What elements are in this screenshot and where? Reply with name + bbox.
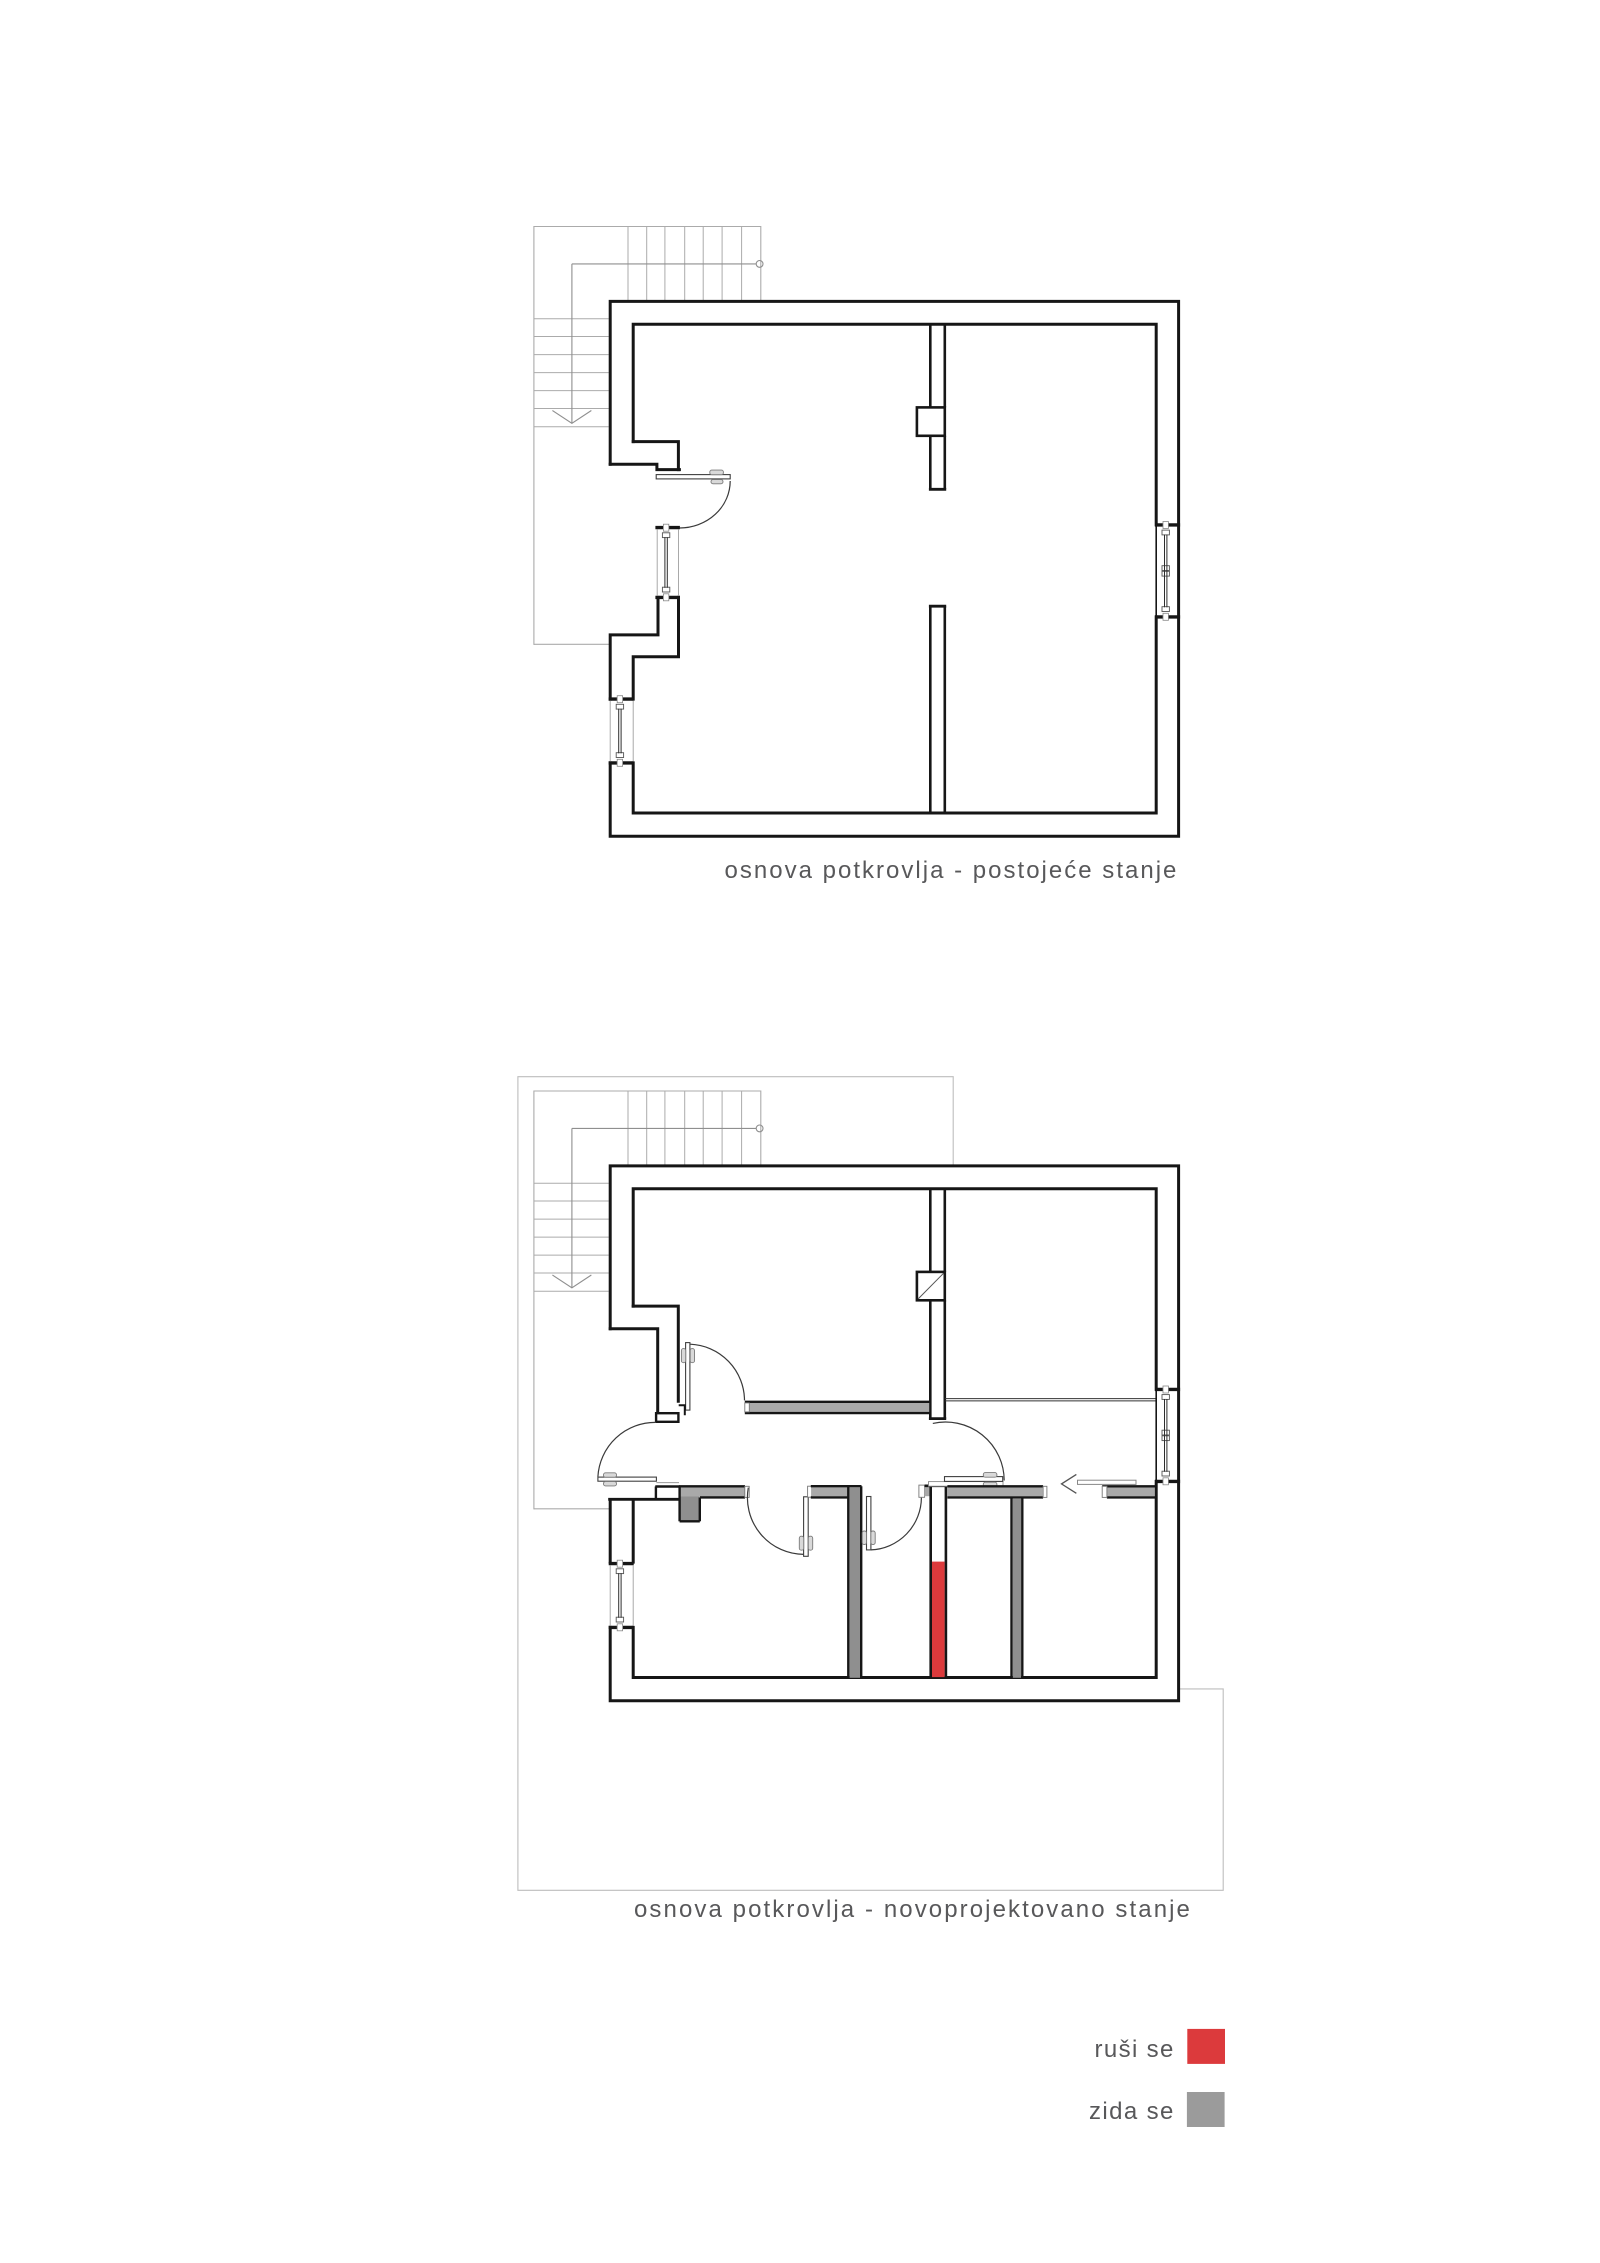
svg-text:ruši se: ruši se	[1095, 2036, 1176, 2063]
svg-text:zida se: zida se	[1089, 2098, 1175, 2125]
svg-text:osnova potkrovlja - postojeće: osnova potkrovlja - postojeće stanje	[725, 857, 1179, 884]
svg-text:osnova potkrovlja - novoprojek: osnova potkrovlja - novoprojektovano sta…	[634, 1896, 1192, 1923]
